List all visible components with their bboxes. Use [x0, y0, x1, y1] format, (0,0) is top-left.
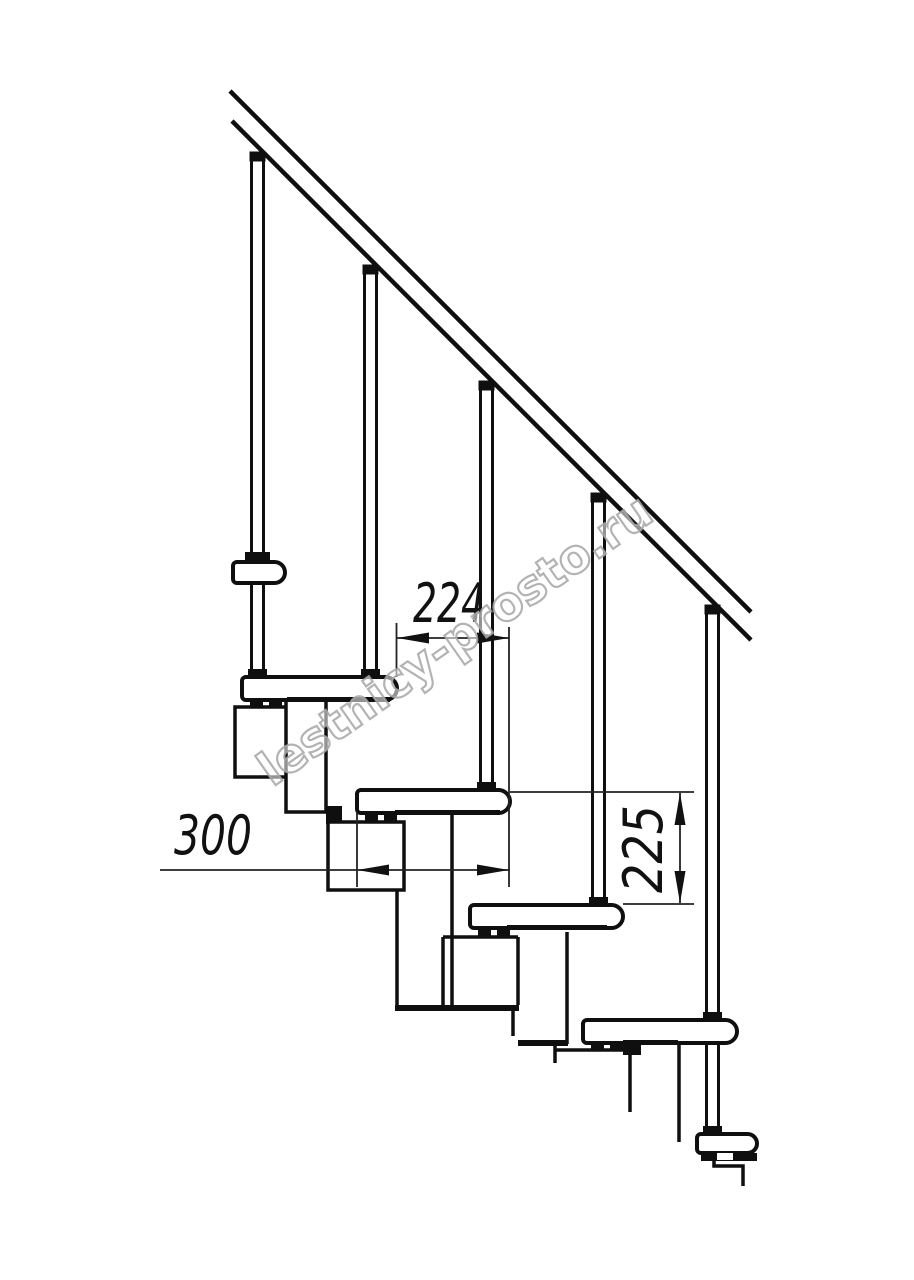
- watermark-text: lestnicy-prosto.ru: [248, 484, 663, 797]
- staircase-elevation-drawing: 224 300 225 lestnicy-prosto.ru: [0, 0, 914, 1280]
- module-column-3-base: [518, 1040, 568, 1046]
- baluster-cap: [250, 152, 266, 162]
- dimension-label-depth: 300: [174, 804, 252, 867]
- arrow-up-icon: [675, 793, 686, 825]
- tread-2: [357, 790, 510, 813]
- floor-mount-plate: [697, 1134, 757, 1153]
- baluster-collar: [703, 1012, 722, 1020]
- tread-1-tab: [250, 700, 263, 708]
- baluster-cap: [591, 493, 607, 503]
- tread-2-tab: [365, 813, 378, 821]
- tread-1-tab: [269, 700, 282, 708]
- tread-4-underside-band: [623, 1040, 678, 1045]
- tread-2-tab: [384, 813, 397, 821]
- dimension-label-rise: 225: [612, 805, 675, 893]
- handrail-upper-line: [230, 91, 751, 612]
- arrow-right-icon: [477, 865, 509, 876]
- baluster-cap: [363, 265, 379, 275]
- baluster-cap: [705, 605, 721, 615]
- baluster-collar: [589, 897, 608, 905]
- baluster-collar: [248, 669, 267, 677]
- baluster-cap: [479, 381, 495, 391]
- rail-end-bracket: [233, 562, 285, 583]
- module-column-2-base: [395, 1005, 519, 1011]
- handrail: [230, 91, 751, 640]
- module-box-1: [328, 822, 404, 890]
- arrow-down-icon: [675, 871, 686, 903]
- dimension-rise-225: 225: [510, 792, 694, 904]
- bottom-floor-mount: [697, 1134, 757, 1186]
- baluster-collar: [477, 782, 496, 790]
- tread-4-tab: [610, 1043, 623, 1051]
- baluster-5: [703, 605, 722, 1135]
- floor-step-cut-line: [714, 1161, 743, 1186]
- tread-3: [470, 905, 623, 928]
- tread-3-underside-band: [507, 925, 607, 930]
- baluster-2: [361, 265, 380, 678]
- tread-2-underside-band: [395, 810, 500, 815]
- technical-drawing-page: 224 300 225 lestnicy-prosto.ru: [0, 0, 914, 1280]
- floor-mount-base-notch: [717, 1153, 733, 1160]
- tread-3-tab: [497, 928, 510, 936]
- baluster-1: [233, 152, 285, 678]
- baluster-collar: [703, 1126, 722, 1134]
- tread-4-tab: [591, 1043, 604, 1051]
- tread-4: [583, 1020, 737, 1043]
- tread-3-tab: [478, 928, 491, 936]
